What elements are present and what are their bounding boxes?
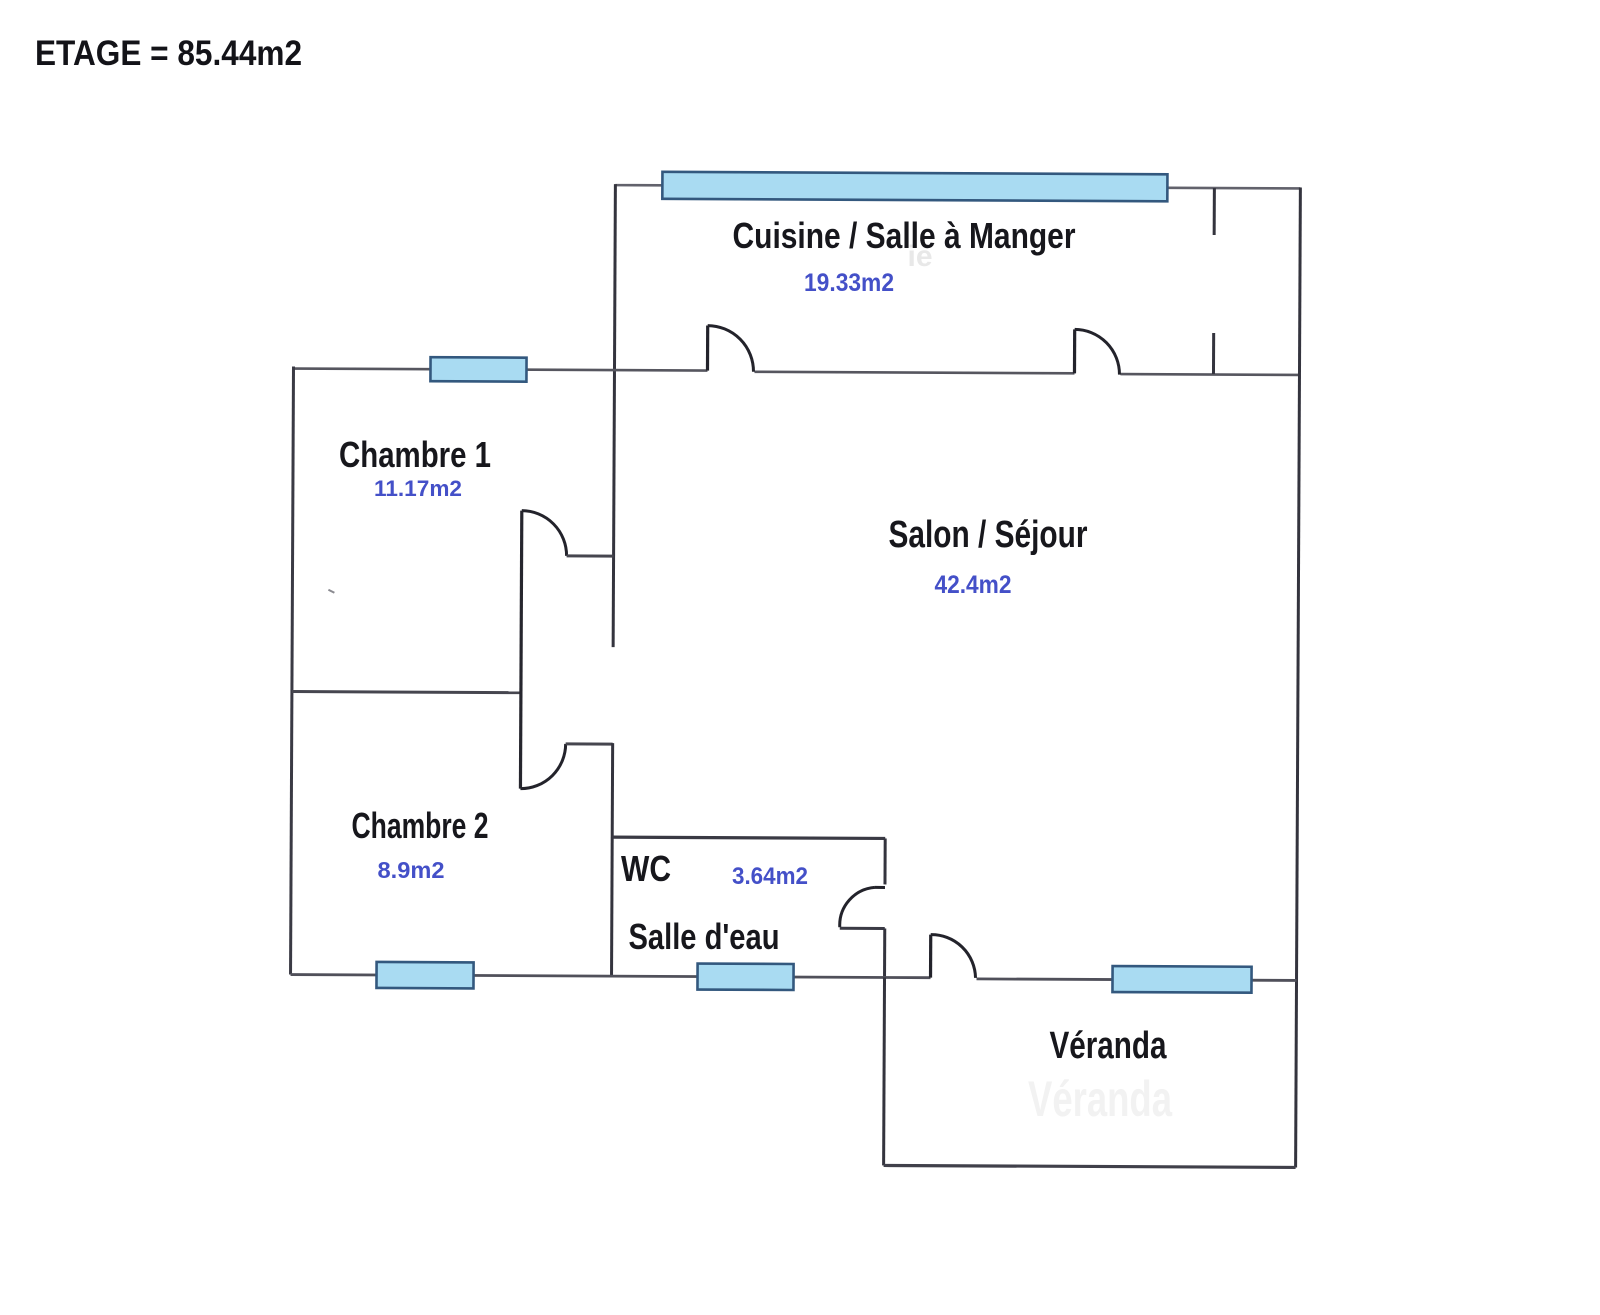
svg-text:Chambre 2: Chambre 2 [352,805,489,846]
svg-text:Véranda: Véranda [1028,1071,1173,1127]
svg-text:Salon / Séjour: Salon / Séjour [889,514,1088,556]
svg-text:19.33m2: 19.33m2 [804,269,894,297]
svg-text:42.4m2: 42.4m2 [935,571,1012,599]
svg-text:Salle d'eau: Salle d'eau [629,916,780,957]
svg-text:Cuisine / Salle à Manger: Cuisine / Salle à Manger [733,215,1076,256]
svg-text:Véranda: Véranda [1050,1025,1168,1067]
svg-text:ETAGE = 85.44m2: ETAGE = 85.44m2 [35,34,302,73]
svg-text:11.17m2: 11.17m2 [374,476,462,501]
svg-text:3.64m2: 3.64m2 [732,863,808,890]
svg-text:Chambre 1: Chambre 1 [339,434,491,475]
svg-text:WC: WC [621,848,671,889]
svg-text:8.9m2: 8.9m2 [378,857,445,883]
